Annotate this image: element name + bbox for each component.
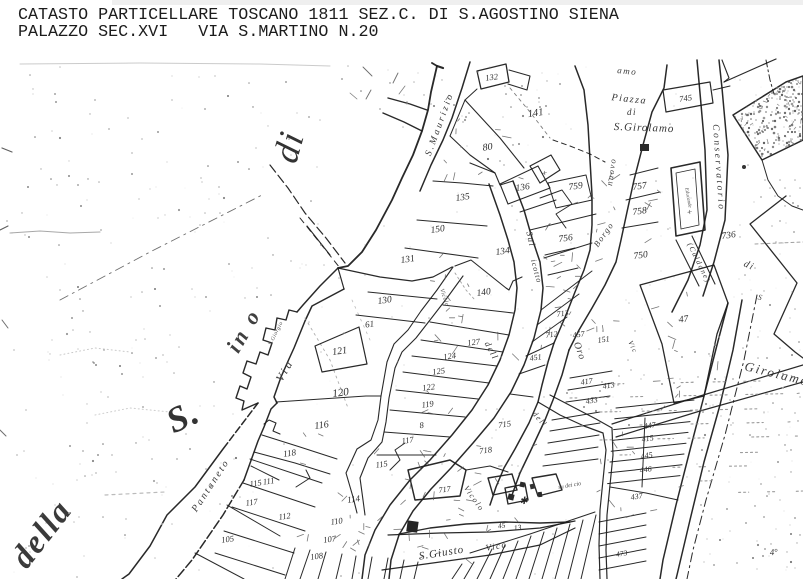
svg-text:759: 759 — [568, 181, 584, 193]
svg-text:in o: in o — [221, 304, 266, 357]
svg-text:110: 110 — [330, 515, 344, 527]
svg-text:di: di — [742, 258, 756, 273]
svg-text:S.Girolamo: S.Girolamo — [614, 121, 675, 135]
svg-text:114: 114 — [347, 493, 362, 505]
svg-text:121: 121 — [331, 345, 347, 358]
svg-text:80: 80 — [482, 141, 493, 153]
svg-text:dell: dell — [530, 410, 549, 429]
svg-text:415: 415 — [641, 433, 654, 444]
svg-text:di: di — [265, 126, 312, 167]
svg-text:108: 108 — [310, 550, 325, 562]
svg-text:473: 473 — [615, 548, 628, 559]
svg-text:417: 417 — [580, 376, 594, 387]
svg-text:Educande: Educande — [683, 187, 692, 209]
svg-text:61: 61 — [364, 318, 374, 329]
svg-text:Conservatorio: Conservatorio — [710, 124, 726, 212]
svg-text:Piazza: Piazza — [610, 92, 648, 107]
svg-text:116: 116 — [314, 419, 330, 432]
svg-text:736: 736 — [721, 230, 737, 242]
svg-text:icotto: icotto — [529, 258, 544, 284]
svg-text:Via: Via — [274, 357, 296, 384]
svg-text:112: 112 — [278, 510, 292, 522]
svg-text:Oro: Oro — [571, 340, 588, 361]
svg-text:758: 758 — [632, 206, 648, 218]
svg-text:13: 13 — [513, 523, 522, 533]
svg-text:115: 115 — [249, 477, 262, 489]
svg-text:750: 750 — [633, 250, 649, 262]
svg-text:136: 136 — [515, 182, 531, 194]
svg-text:Borgo: Borgo — [591, 220, 616, 249]
svg-text:718: 718 — [479, 444, 494, 456]
svg-text:713: 713 — [556, 308, 569, 319]
svg-text:122: 122 — [422, 381, 437, 393]
svg-text:S.: S. — [160, 391, 206, 441]
svg-text:712: 712 — [545, 329, 558, 340]
svg-text:451: 451 — [529, 352, 542, 363]
svg-text:132: 132 — [485, 71, 500, 83]
svg-text:433: 433 — [585, 395, 598, 406]
svg-text:715: 715 — [498, 418, 512, 430]
svg-text:457: 457 — [572, 329, 586, 340]
svg-text:127: 127 — [467, 336, 482, 348]
svg-text:140: 140 — [476, 287, 492, 299]
svg-text:118: 118 — [283, 447, 298, 459]
svg-text:105: 105 — [221, 533, 235, 545]
svg-text:Vic: Vic — [626, 339, 639, 354]
svg-text:150: 150 — [430, 224, 446, 236]
svg-text:nuovo: nuovo — [604, 157, 618, 186]
svg-text:745: 745 — [679, 92, 693, 104]
svg-text:445: 445 — [640, 450, 653, 461]
svg-text:413: 413 — [602, 380, 615, 391]
svg-text:amo: amo — [617, 65, 638, 77]
svg-text:di: di — [627, 107, 637, 117]
svg-text:della: della — [5, 493, 80, 575]
svg-text:717: 717 — [438, 484, 452, 495]
svg-text:107: 107 — [323, 533, 338, 545]
svg-text:8: 8 — [419, 420, 425, 431]
svg-text:125: 125 — [432, 365, 446, 377]
svg-text:117: 117 — [245, 496, 259, 508]
svg-text:115: 115 — [375, 458, 388, 470]
svg-text:47: 47 — [678, 314, 690, 325]
svg-text:su dei cio: su dei cio — [558, 481, 582, 491]
svg-text:Sal: Sal — [524, 231, 537, 249]
svg-text:130: 130 — [377, 295, 393, 307]
svg-text:45: 45 — [497, 521, 506, 531]
svg-text:134: 134 — [495, 246, 511, 258]
svg-text:135: 135 — [455, 192, 471, 204]
svg-text:S: S — [757, 293, 765, 303]
svg-text:124: 124 — [443, 350, 458, 362]
svg-text:+: + — [541, 168, 548, 179]
svg-text:4°: 4° — [769, 547, 778, 558]
svg-text:757: 757 — [632, 181, 649, 193]
svg-text:131: 131 — [400, 254, 416, 266]
svg-text:151: 151 — [597, 334, 610, 345]
svg-text:446: 446 — [639, 464, 652, 475]
svg-text:+: + — [686, 207, 693, 218]
svg-text:Vicolo: Vicolo — [462, 484, 486, 513]
svg-text:119: 119 — [421, 398, 435, 410]
